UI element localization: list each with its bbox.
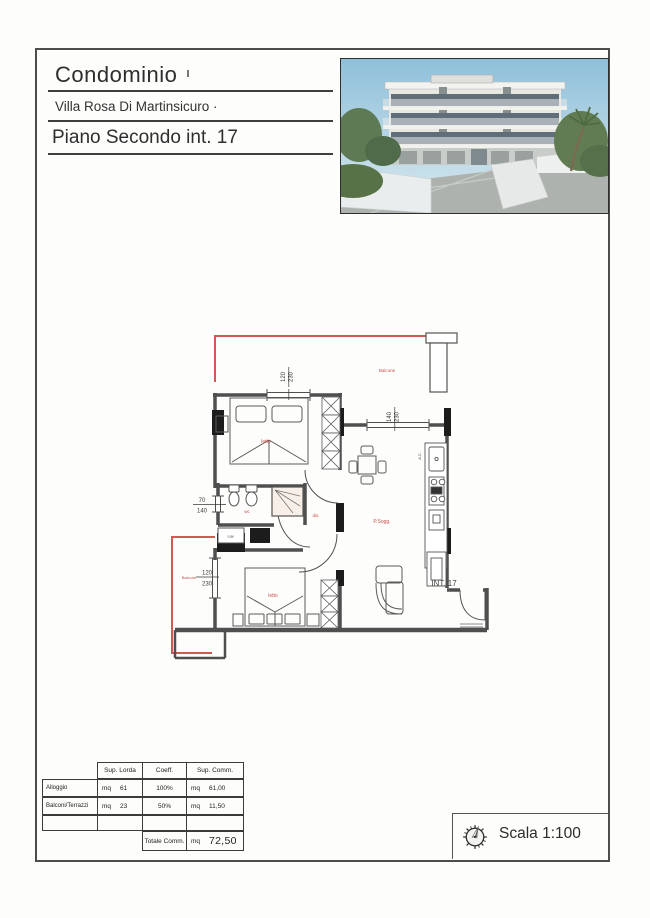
building-rendering — [341, 59, 608, 213]
bathroom-label: wc — [244, 509, 250, 514]
balconi-comm: mq 11,50 — [186, 797, 244, 815]
balcony-railing-left — [172, 537, 215, 653]
header-rule-3 — [48, 153, 333, 155]
dim-window-living-w: 140 — [387, 411, 393, 422]
dim-window-bath-w: 70 — [199, 498, 206, 504]
scale-box: Scala 1:100 — [452, 813, 609, 859]
building-photo — [340, 58, 609, 214]
bedroom-top-label: letto — [261, 439, 271, 445]
unit-mq: mq — [102, 785, 111, 792]
unit-number-label: INT. 17 — [431, 579, 457, 588]
kitchen-counter — [425, 443, 447, 586]
condominium-name: Villa Rosa Di Martinsicuro · — [55, 99, 218, 114]
wall-block-top-right — [426, 333, 457, 343]
floor-plan: 120 230 140 230 70 140 120 230 Balcone B… — [150, 320, 510, 680]
balcony-railing-top — [215, 336, 431, 382]
condominium-title: Condominio — [55, 62, 177, 88]
dimension-labels: 120 230 140 230 70 140 120 230 — [197, 371, 401, 587]
unit-mq: mq — [102, 803, 111, 810]
dim-window-top-w: 120 — [281, 371, 287, 382]
laundry-label: Lav. — [228, 535, 235, 539]
scale-label: Scala 1:100 — [499, 825, 581, 843]
dining-table — [349, 446, 386, 484]
alloggio-lorda-value: 61 — [120, 785, 127, 792]
header-rule-2 — [48, 120, 333, 122]
total-value: 72,50 — [209, 835, 237, 847]
floor-unit-label: Piano Secondo int. 17 — [52, 127, 238, 149]
dim-window-bedroom-h: 230 — [202, 582, 213, 588]
row-label-balconi: Balconi/Terrazzi — [42, 797, 98, 815]
sofa — [376, 566, 403, 614]
header-rule-1 — [48, 90, 333, 92]
balcony-top-label: Balcone — [379, 368, 396, 373]
ac-label: A.C. — [418, 452, 422, 459]
door-swings — [277, 470, 485, 627]
balconi-lorda: mq 23 — [97, 797, 143, 815]
bedroom-bottom-label: letto — [268, 593, 278, 599]
bed-top — [216, 398, 308, 464]
scan-artifact — [187, 70, 189, 77]
col-header-comm: Sup. Comm. — [186, 762, 244, 779]
unit-mq: mq — [191, 785, 200, 792]
shower — [272, 487, 303, 516]
unit-mq: mq — [191, 838, 200, 845]
dim-window-top-h: 230 — [289, 371, 295, 382]
wardrobe-top — [322, 397, 340, 469]
alloggio-comm: mq 61,00 — [186, 779, 244, 797]
balcony-wall-block — [430, 343, 447, 392]
empty-cell — [97, 815, 143, 831]
dim-window-bath-h: 140 — [197, 509, 208, 515]
balcony-left-label: Balcone — [182, 575, 197, 580]
balconi-lorda-value: 23 — [120, 803, 127, 810]
scanned-floorplan-sheet: Condominio Villa Rosa Di Martinsicuro · … — [0, 0, 650, 918]
compass-icon — [461, 823, 489, 851]
hallway-label: dis. — [312, 513, 319, 518]
total-label: Totale Comm. — [142, 831, 187, 851]
total-comm: mq 72,50 — [186, 831, 244, 851]
alloggio-comm-value: 61,00 — [209, 785, 225, 792]
empty-cell — [142, 815, 187, 831]
col-header-lorda: Sup. Lorda — [97, 762, 143, 779]
alloggio-lorda: mq 61 — [97, 779, 143, 797]
empty-cell — [42, 815, 98, 831]
bathroom-fixtures — [229, 485, 257, 506]
balconi-coeff: 50% — [142, 797, 187, 815]
wardrobe-bottom — [321, 580, 338, 628]
building — [383, 75, 567, 165]
surfaces-table: Sup. Lorda Coeff. Sup. Comm. Alloggio mq… — [42, 762, 247, 852]
living-label: P.Sogg. — [373, 519, 390, 525]
dim-window-bedroom-w: 120 — [202, 571, 213, 577]
cabinet-block — [250, 528, 270, 543]
row-label-alloggio: Alloggio — [42, 779, 98, 797]
balconi-comm-value: 11,50 — [209, 803, 225, 810]
col-header-coeff: Coeff. — [142, 762, 187, 779]
empty-cell — [186, 815, 244, 831]
unit-mq: mq — [191, 803, 200, 810]
dim-window-living-h: 230 — [395, 411, 401, 422]
alloggio-coeff: 100% — [142, 779, 187, 797]
